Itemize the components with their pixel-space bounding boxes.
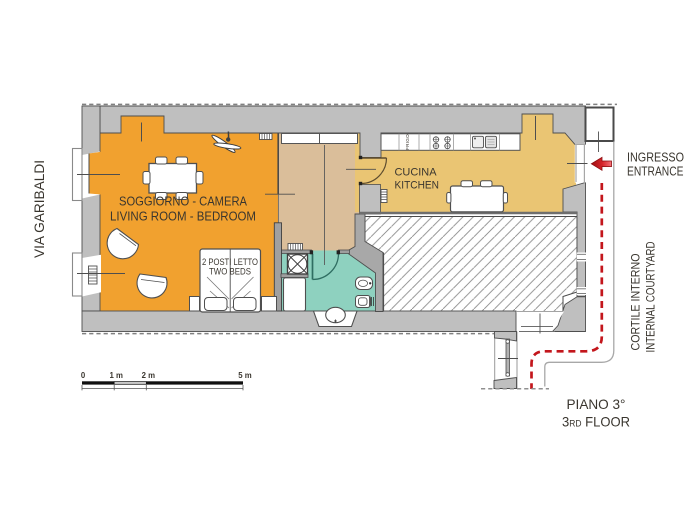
svg-text:LIVING ROOM - BEDROOM: LIVING ROOM - BEDROOM (110, 209, 256, 224)
svg-text:SOGGIORNO - CAMERA: SOGGIORNO - CAMERA (119, 194, 247, 209)
svg-text:PIANO 3°: PIANO 3° (567, 397, 626, 412)
svg-text:CUCINA: CUCINA (395, 167, 438, 179)
svg-text:1 m: 1 m (109, 371, 123, 380)
svg-text:FRIGO: FRIGO (405, 134, 410, 150)
svg-text:0: 0 (81, 371, 86, 380)
svg-text:CORTILE INTERNO: CORTILE INTERNO (629, 254, 643, 351)
svg-text:2 POSTI LETTO: 2 POSTI LETTO (202, 257, 258, 267)
svg-text:ENTRANCE: ENTRANCE (627, 164, 684, 179)
svg-text:2 m: 2 m (142, 371, 156, 380)
svg-text:TWO BEDS: TWO BEDS (209, 267, 251, 277)
svg-text:5 m: 5 m (238, 371, 252, 380)
svg-text:INTERNAL COURTYARD: INTERNAL COURTYARD (644, 241, 658, 352)
svg-text:VIA GARIBALDI: VIA GARIBALDI (32, 160, 47, 258)
svg-text:KITCHEN: KITCHEN (395, 180, 440, 192)
svg-text:INGRESSO: INGRESSO (627, 150, 684, 165)
